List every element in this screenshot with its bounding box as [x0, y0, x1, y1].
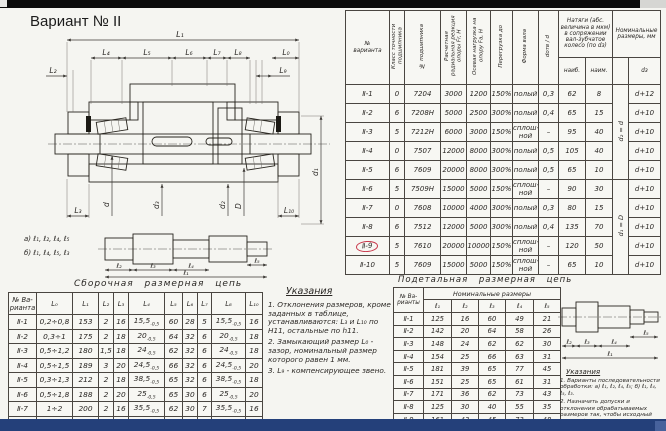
assembly-table-body: Ⅱ-10,2÷0,815321615,5-0,56028515,5-0,516Ⅱ… — [9, 315, 263, 431]
data-cell: 2 — [99, 402, 114, 417]
column-header: ℓ₄ — [506, 300, 534, 313]
table-row: Ⅱ-214220645826 — [394, 325, 561, 338]
data-cell: 5000 — [467, 180, 491, 199]
data-cell: 5 — [390, 180, 405, 199]
data-cell: 212 — [73, 373, 99, 388]
data-cell: 0,3 — [539, 199, 559, 218]
data-cell: 15,5-0,5 — [129, 315, 165, 330]
assembly-drawing: L₁ L₄ L₅ L₆ L₇ L₈ L₀ L₂ L₉ L₃ L₁₀ d — [10, 24, 345, 280]
data-cell: 28 — [183, 315, 198, 330]
data-cell: d+10 — [629, 180, 661, 199]
gear-section — [143, 102, 213, 164]
data-cell: 175 — [73, 329, 99, 344]
data-cell: 200 — [73, 402, 99, 417]
window-bottom-notch — [655, 421, 666, 431]
data-cell: – — [539, 180, 559, 199]
table-row: Ⅱ-657509Н150005000150%сплош-ной–9030d₁ =… — [346, 180, 661, 199]
data-cell: 25-0,5 — [129, 387, 165, 402]
table-row: Ⅱ-71÷220021635,5-0,56230735,5-0,516 — [9, 402, 263, 417]
data-cell: 7610 — [405, 237, 441, 256]
window-bottom-bar — [0, 419, 666, 431]
data-cell: 35,5-0,5 — [129, 402, 165, 417]
data-cell: 10000 — [441, 199, 467, 218]
data-cell: 30 — [586, 180, 613, 199]
data-cell: 18 — [246, 373, 263, 388]
data-cell: 20000 — [441, 161, 467, 180]
data-cell: 0,2÷0,8 — [37, 315, 73, 330]
variant-cell: Ⅱ-4 — [346, 142, 390, 161]
data-cell: 62 — [479, 338, 506, 351]
data-cell: 36 — [452, 388, 479, 401]
left-cover — [68, 112, 89, 134]
data-cell: 24,5-0,5 — [212, 358, 246, 373]
data-cell: 300% — [491, 142, 513, 161]
data-cell: 31 — [534, 350, 561, 363]
data-cell: 6 — [198, 387, 212, 402]
data-cell: 16 — [114, 315, 129, 330]
data-cell: 300% — [491, 218, 513, 237]
data-cell: 7212Н — [405, 123, 441, 142]
data-cell: 66 — [479, 350, 506, 363]
data-cell: 77 — [506, 363, 534, 376]
data-cell: 32 — [183, 373, 198, 388]
assembly-chain-table: № Ва-риантаL₀L₁L₂L₃L₄L₅L₆L₇L₈L₁₀ Ⅱ-10,2÷… — [8, 292, 263, 431]
variant-cell: Ⅱ-7 — [346, 199, 390, 218]
data-cell: 148 — [424, 338, 452, 351]
data-cell: 0 — [390, 199, 405, 218]
dim-L6: L₆ — [185, 48, 192, 57]
data-cell: 40 — [586, 123, 613, 142]
data-cell: 35,5-0,5 — [212, 402, 246, 417]
data-cell: 0,5÷1,2 — [37, 344, 73, 359]
data-cell: 5000 — [467, 218, 491, 237]
header-bore-ratio: dотв / d — [539, 11, 559, 85]
data-cell: 62 — [165, 344, 183, 359]
table-row: Ⅱ-20,3÷117521820-0,56432620-0,518 — [9, 329, 263, 344]
variant-cell: Ⅱ-1 — [394, 313, 424, 326]
data-cell: 154 — [424, 350, 452, 363]
sequence-b: б) ℓ₁, ℓ₄, ℓ₅, ℓ₃ — [24, 249, 70, 257]
column-header: ℓ₂ — [452, 300, 479, 313]
data-cell: 2 — [99, 373, 114, 388]
data-cell: полый — [513, 199, 539, 218]
data-cell: 8000 — [467, 142, 491, 161]
data-cell: 7 — [198, 402, 212, 417]
data-cell: 58 — [506, 325, 534, 338]
data-cell: 24-0,5 — [212, 344, 246, 359]
data-cell: 16 — [452, 313, 479, 326]
data-cell: 20 — [246, 358, 263, 373]
data-cell: 125 — [424, 401, 452, 414]
data-cell: 15 — [586, 199, 613, 218]
data-cell: 0,5 — [539, 142, 559, 161]
column-header: ℓ₁ — [424, 300, 452, 313]
variant-cell: Ⅱ-7 — [394, 388, 424, 401]
data-cell: 49 — [506, 313, 534, 326]
dim-l1: ℓ₁ — [183, 269, 189, 277]
data-cell: 25-0,5 — [212, 387, 246, 402]
variant-cell: Ⅱ-6 — [346, 180, 390, 199]
data-cell: 6000 — [441, 123, 467, 142]
detail-shaft-drawing: ℓ₅ ℓ₂ ℓ₃ ℓ₄ ℓ₁ — [558, 290, 664, 366]
right-cover — [278, 112, 299, 134]
data-cell: 2 — [99, 329, 114, 344]
data-cell: 150% — [491, 85, 513, 104]
variant-cell: Ⅱ-8 — [346, 218, 390, 237]
data-cell: 2 — [99, 387, 114, 402]
keyway — [152, 137, 192, 146]
header-bearing-number: № подшипника — [405, 11, 441, 85]
nominal-diameter-note: d₁ = D — [613, 180, 629, 275]
table-row: Ⅱ-50,3÷1,321221838,5-0,56532638,5-0,518 — [9, 373, 263, 388]
data-cell: 151 — [424, 375, 452, 388]
data-cell: d+12 — [629, 85, 661, 104]
data-cell: 150% — [491, 256, 513, 275]
data-cell: 45 — [534, 363, 561, 376]
table-row: Ⅱ-112516604921 — [394, 313, 561, 326]
data-cell: 1200 — [467, 85, 491, 104]
data-cell: 0 — [390, 142, 405, 161]
variant-cell: Ⅱ-4 — [394, 350, 424, 363]
table-row: Ⅱ-518139657745 — [394, 363, 561, 376]
data-cell: 18 — [246, 329, 263, 344]
data-cell: 65 — [479, 375, 506, 388]
data-cell: 31 — [534, 375, 561, 388]
data-cell: 189 — [73, 358, 99, 373]
data-cell: 38,5-0,5 — [129, 373, 165, 388]
window-top-right-edge — [640, 0, 666, 8]
header-interference-group: Натяги (абс. величина в мкм) в сопряжени… — [559, 11, 613, 58]
data-cell: 0,5 — [539, 161, 559, 180]
data-cell: 0,3÷1 — [37, 329, 73, 344]
data-cell: 3000 — [441, 85, 467, 104]
table-row: Ⅱ-10720430001200150%полый0,3628d₂ = dd+1… — [346, 85, 661, 104]
data-cell: d+10 — [629, 161, 661, 180]
dim-d1: d₁ — [311, 168, 320, 176]
data-cell: 0,5÷1,5 — [37, 358, 73, 373]
scanned-task-sheet: Вариант № II — [0, 0, 666, 431]
data-cell: – — [539, 123, 559, 142]
detail-instruction-item: 1. Варианты последовательности обработки… — [560, 378, 664, 397]
data-cell: 26 — [534, 325, 561, 338]
variant-cell: Ⅱ-1 — [346, 85, 390, 104]
data-cell: полый — [513, 85, 539, 104]
data-cell: 40 — [479, 401, 506, 414]
data-cell: 25 — [452, 350, 479, 363]
column-header: L₁₀ — [246, 293, 263, 315]
data-cell: 15,5-0,5 — [212, 315, 246, 330]
dim-D: D — [234, 203, 243, 209]
data-cell: 20 — [114, 358, 129, 373]
data-cell: сплош-ной — [513, 237, 539, 256]
data-cell: 7512 — [405, 218, 441, 237]
variant-cell: Ⅱ-7 — [9, 402, 37, 417]
data-cell: 7509Н — [405, 180, 441, 199]
variant-cell: Ⅱ-5 — [346, 161, 390, 180]
column-header: L₂ — [99, 293, 114, 315]
table-row: Ⅱ-615125656131 — [394, 375, 561, 388]
variant-cell: Ⅱ-5 — [9, 373, 37, 388]
table-row: Ⅱ-40,5÷1,518932024,5-0,56632624,5-0,520 — [9, 358, 263, 373]
data-cell: 62 — [165, 402, 183, 417]
detail-header-group: Номинальные размеры — [424, 288, 561, 300]
data-cell: – — [539, 237, 559, 256]
dim-l4: ℓ₄ — [188, 262, 194, 270]
data-cell: 62 — [559, 85, 586, 104]
dim-l4: ℓ₄ — [611, 338, 617, 346]
data-cell: 15 — [586, 104, 613, 123]
data-cell: 80 — [559, 199, 586, 218]
data-cell: 150% — [491, 180, 513, 199]
column-header: ℓ₅ — [534, 300, 561, 313]
dim-l3: ℓ₃ — [584, 338, 590, 346]
header-variant: № варианта — [346, 11, 390, 85]
data-cell: 65 — [559, 256, 586, 275]
data-cell: 20-0,5 — [129, 329, 165, 344]
data-cell: 60 — [165, 315, 183, 330]
data-cell: 60 — [479, 313, 506, 326]
data-cell: 10 — [586, 256, 613, 275]
data-cell: 95 — [559, 123, 586, 142]
data-cell: 35 — [534, 401, 561, 414]
data-cell: 0,4 — [539, 104, 559, 123]
data-cell: 8000 — [467, 161, 491, 180]
data-cell: 0,3÷1,3 — [37, 373, 73, 388]
table-row: Ⅱ-415425666331 — [394, 350, 561, 363]
variant-cell: Ⅱ-3 — [346, 123, 390, 142]
header-interference-max: наиб. — [559, 58, 586, 85]
data-cell: 64 — [479, 325, 506, 338]
data-cell: полый — [513, 218, 539, 237]
data-cell: 25 — [452, 375, 479, 388]
data-cell: 90 — [559, 180, 586, 199]
data-cell: 3000 — [467, 123, 491, 142]
dim-L2: L₂ — [49, 66, 56, 75]
variant-cell: Ⅱ-9 — [346, 237, 390, 256]
data-cell: 7609 — [405, 161, 441, 180]
variant-cell: Ⅱ-10 — [346, 256, 390, 275]
red-circle-highlight: Ⅱ-9 — [356, 240, 379, 253]
data-cell: 30 — [452, 401, 479, 414]
data-cell: 125 — [424, 313, 452, 326]
data-cell: 0,3 — [539, 85, 559, 104]
data-cell: 20 — [452, 325, 479, 338]
data-cell: 180 — [73, 344, 99, 359]
data-cell: 20-0,5 — [212, 329, 246, 344]
data-cell: сплош-ной — [513, 180, 539, 199]
dim-L3: L₃ — [74, 206, 81, 215]
data-cell: 65 — [559, 104, 586, 123]
header-accuracy-class: Класс точности подшипника — [390, 11, 405, 85]
data-cell: полый — [513, 142, 539, 161]
dim-L1: L₁ — [176, 30, 184, 39]
variant-cell: Ⅱ-3 — [394, 338, 424, 351]
variant-cell: Ⅱ-8 — [394, 401, 424, 414]
data-cell: d+10 — [629, 104, 661, 123]
instruction-item: 2. Замыкающий размер L₀ - зазор, номинал… — [268, 338, 392, 364]
data-cell: 62 — [506, 338, 534, 351]
header-nominal-group: Номинальные размеры, мм — [613, 11, 661, 58]
table-row: Ⅱ-60,5÷1,818822025-0,56530625-0,520 — [9, 387, 263, 402]
data-cell: 7507 — [405, 142, 441, 161]
dim-l2: ℓ₂ — [566, 338, 572, 346]
dim-L10: L₁₀ — [284, 206, 294, 215]
variant-cell: Ⅱ-6 — [394, 375, 424, 388]
right-seal — [276, 116, 281, 132]
data-cell: 5 — [390, 256, 405, 275]
header-shaft-form: Форма вала — [513, 11, 539, 85]
column-header: L₄ — [129, 293, 165, 315]
column-header: L₀ — [37, 293, 73, 315]
dim-l5: ℓ₅ — [254, 257, 260, 265]
data-cell: 20000 — [441, 237, 467, 256]
data-cell: 5000 — [441, 104, 467, 123]
data-cell: 10000 — [467, 237, 491, 256]
header-overload: Перегрузка до — [491, 11, 513, 85]
assembly-header-row: № Ва-риантаL₀L₁L₂L₃L₄L₅L₆L₇L₈L₁₀ — [9, 293, 263, 315]
data-cell: 20 — [114, 387, 129, 402]
data-cell: 16 — [246, 315, 263, 330]
data-cell: 65 — [165, 387, 183, 402]
data-cell: 7208Н — [405, 104, 441, 123]
data-cell: 8 — [586, 85, 613, 104]
detail-table-body: Ⅱ-112516604921Ⅱ-214220645826Ⅱ-3148246262… — [394, 313, 561, 431]
data-cell: 300% — [491, 104, 513, 123]
detail-table-title: Подетальная размерная цепь — [398, 275, 572, 285]
dim-L4: L₄ — [102, 48, 109, 57]
shaft-sketch: ℓ₂ ℓ₃ ℓ₄ ℓ₅ ℓ₁ — [98, 234, 274, 277]
data-cell: 300% — [491, 161, 513, 180]
data-cell: 70 — [586, 218, 613, 237]
data-cell: 32 — [183, 358, 198, 373]
data-cell: 65 — [165, 373, 183, 388]
data-cell: 6 — [198, 344, 212, 359]
data-cell: 62 — [479, 388, 506, 401]
data-cell: 18 — [114, 373, 129, 388]
dim-l5: ℓ₅ — [643, 329, 649, 337]
variant-cell: Ⅱ-2 — [9, 329, 37, 344]
data-cell: 150% — [491, 237, 513, 256]
data-cell: 0,4 — [539, 218, 559, 237]
dim-d: d — [102, 202, 111, 207]
data-cell: 16 — [246, 402, 263, 417]
dim-L7: L₇ — [213, 48, 220, 57]
data-cell: 24-0,5 — [129, 344, 165, 359]
table-row: Ⅱ-10,2÷0,815321615,5-0,56028515,5-0,516 — [9, 315, 263, 330]
header-interference-min: наим. — [586, 58, 613, 85]
header-nominal-note — [613, 58, 629, 85]
variants-table: № варианта Класс точности подшипника № п… — [345, 10, 661, 275]
data-cell: 24 — [452, 338, 479, 351]
data-cell: 6 — [198, 358, 212, 373]
data-cell: 18 — [114, 329, 129, 344]
sequence-a: а) ℓ₁, ℓ₂, ℓ₄, ℓ₅ — [24, 235, 70, 243]
data-cell: 153 — [73, 315, 99, 330]
column-header: № Ва-рианта — [9, 293, 37, 315]
data-cell: 181 — [424, 363, 452, 376]
left-seal — [86, 116, 91, 132]
instruction-item: 3. L₉ - компенсирующее звено. — [268, 367, 392, 376]
data-cell: 5000 — [467, 256, 491, 275]
variant-cell: Ⅱ-3 — [9, 344, 37, 359]
data-cell: 7609 — [405, 256, 441, 275]
data-cell: 4000 — [467, 199, 491, 218]
dim-l3: ℓ₃ — [150, 262, 156, 270]
data-cell: 0,5÷1,8 — [37, 387, 73, 402]
data-cell: d+10 — [629, 218, 661, 237]
data-cell: 6 — [198, 329, 212, 344]
data-cell: полый — [513, 161, 539, 180]
data-cell: 66 — [165, 358, 183, 373]
data-cell: 64 — [165, 329, 183, 344]
data-cell: 50 — [586, 237, 613, 256]
data-cell: 7608 — [405, 199, 441, 218]
data-cell: 171 — [424, 388, 452, 401]
column-header: L₆ — [183, 293, 198, 315]
data-cell: сплош-ной — [513, 256, 539, 275]
dim-l2: ℓ₂ — [116, 262, 122, 270]
data-cell: 2 — [99, 315, 114, 330]
data-cell: 73 — [506, 388, 534, 401]
column-header: L₃ — [114, 293, 129, 315]
data-cell: 20 — [246, 387, 263, 402]
data-cell: 12000 — [441, 142, 467, 161]
data-cell: 150% — [491, 123, 513, 142]
detail-chain-table: № Ва- рианты Номинальные размеры ℓ₁ℓ₂ℓ₃ℓ… — [393, 287, 561, 431]
data-cell: 6 — [198, 373, 212, 388]
variant-cell: Ⅱ-2 — [394, 325, 424, 338]
data-cell: 135 — [559, 218, 586, 237]
data-cell: 32 — [183, 329, 198, 344]
dim-L8: L₈ — [234, 48, 241, 57]
data-cell: 120 — [559, 237, 586, 256]
instructions-title: Указания — [286, 286, 392, 297]
data-cell: 6 — [390, 218, 405, 237]
data-cell: d+10 — [629, 123, 661, 142]
data-cell: 6 — [390, 104, 405, 123]
table-row: Ⅱ-717136627343 — [394, 388, 561, 401]
instruction-item: 1. Отклонения размеров, кроме заданных в… — [268, 301, 392, 335]
data-cell: – — [539, 256, 559, 275]
data-cell: 0 — [390, 85, 405, 104]
table-row: Ⅱ-314824626230 — [394, 338, 561, 351]
dim-d3: d₃ — [152, 201, 161, 209]
data-cell: 10 — [586, 161, 613, 180]
data-cell: 30 — [183, 402, 198, 417]
data-cell: 30 — [534, 338, 561, 351]
data-cell: 5 — [390, 237, 405, 256]
column-header: L₈ — [212, 293, 246, 315]
nominal-diameter-note: d₂ = d — [613, 85, 629, 180]
data-cell: d+10 — [629, 142, 661, 161]
data-cell: 18 — [246, 344, 263, 359]
data-cell: 2500 — [467, 104, 491, 123]
data-cell: 39 — [452, 363, 479, 376]
data-cell: 1,5 — [99, 344, 114, 359]
data-cell: 21 — [534, 313, 561, 326]
data-cell: 6 — [390, 161, 405, 180]
data-cell: 43 — [534, 388, 561, 401]
data-cell: 15000 — [441, 256, 467, 275]
header-axial-load: Осевая нагрузка на опору Fa, Н — [467, 11, 491, 85]
data-cell: 38,5-0,5 — [212, 373, 246, 388]
data-cell: 40 — [586, 142, 613, 161]
dim-L0: L₀ — [282, 48, 289, 57]
variant-cell: Ⅱ-4 — [9, 358, 37, 373]
dim-d2: d₂ — [218, 201, 227, 209]
window-top-bar — [0, 0, 640, 8]
header-dz: dз — [629, 58, 661, 85]
